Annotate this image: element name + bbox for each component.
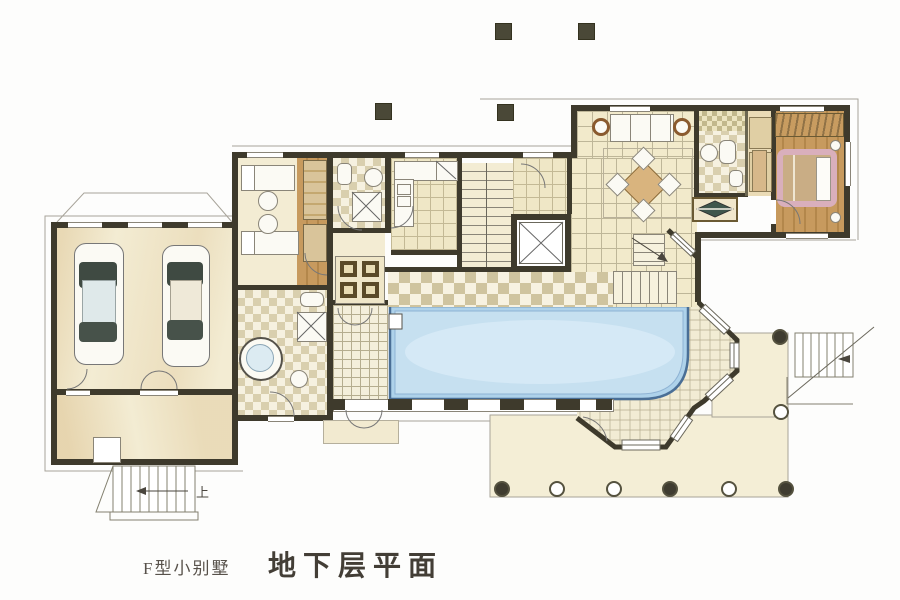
wall-closet-divider [745,111,748,196]
pool-wall-pier [500,399,524,410]
shower-stall [352,192,382,222]
garage-double-door-gap [140,390,178,396]
sideboard [692,197,738,222]
shower-stall [297,312,327,342]
exterior-stairs-west [96,466,198,520]
pillow [242,232,255,254]
sink [364,168,383,187]
staffroom-window [247,152,283,158]
wall-hall-east [695,232,701,302]
structural-column [375,103,392,120]
living-window [610,106,650,112]
bedroom-window-south [786,233,828,239]
car-2-rear-window [167,320,203,340]
elevator-cab [519,222,563,264]
bed-fold-line [793,155,795,201]
wall-bathnorth-south [333,228,391,233]
swimming-pool [379,306,688,399]
pool-skimmer-box [389,314,402,329]
wall-garage-south [51,459,237,465]
inlay-tile [340,282,357,298]
wall-deck-north [385,267,511,272]
pool-wall-pier [596,399,612,410]
wardrobe [775,113,844,137]
cabinet [303,224,327,262]
floor-plan-canvas: 上 F型小别墅 地下层平面 [0,0,900,600]
round-tub-basin [246,344,274,372]
garage-door-gap [66,390,90,396]
toilet [300,292,324,307]
villa-model-caption: F型小别墅 [143,554,230,579]
pool-wall-pier [388,399,412,410]
garage-window [68,222,102,228]
pool-wall-pier [556,399,580,410]
kitchen-sink [397,196,411,207]
bedroom-door-gap [771,200,776,224]
wall-bathnorth-east [385,158,391,233]
wall-kitchen-south [391,250,461,255]
side-table [592,118,610,136]
interior-stairs-upper [633,234,665,266]
staff-bed-1 [241,165,295,191]
car-1-rear-window [79,322,117,342]
bed-pillow [816,157,831,201]
structural-column [578,23,595,40]
corridor-window [523,152,553,158]
bedside-lamp [830,140,841,151]
inlay-tile [362,261,379,277]
desk [752,150,767,192]
bath-door-gap [268,416,294,422]
staff-bed-2 [241,231,299,255]
stairwell-divider [486,163,487,267]
side-table [673,118,691,136]
refrigerator [436,161,458,181]
wardrobe-shelves [303,160,327,220]
bidet [729,170,743,187]
toilet [719,140,736,164]
driveway-room [57,395,232,465]
stairwell [461,163,513,267]
garage-window [188,222,222,228]
pillow [242,166,255,190]
structural-column [495,23,512,40]
stairs-up-label: 上 [196,482,209,501]
car-2 [162,245,210,367]
plan-title-caption: 地下层平面 [268,544,443,584]
exterior-stairs-east [787,327,874,404]
bedroom-window-north [780,106,824,112]
sink [290,370,308,388]
kitchen-sink [397,184,411,195]
wall-corridor-east [567,158,572,214]
corridor [513,158,571,216]
bedside-lamp [830,212,841,223]
car-1 [74,243,124,365]
wall-staffroom-south [237,285,327,290]
stool [258,214,278,234]
sofa [610,114,674,142]
changing-room [333,305,388,412]
wall-bath-east-west [694,111,699,196]
foyer-inlay [335,256,385,304]
interior-stairs-lower [613,271,677,304]
bathroom-east-shower-strip [697,111,747,131]
toilet [337,163,352,185]
garage-window [128,222,162,228]
wall-garage-west [51,222,57,465]
bedroom-window-east [845,142,851,186]
closet-shelf [749,117,772,149]
driveway-hatch [93,437,121,463]
inlay-tile [362,282,379,298]
pool-wall-pier [444,399,468,410]
structural-column [497,104,514,121]
pool-deck-checker [388,272,613,307]
pool-wall-pier [333,399,345,410]
south-door-landing [323,420,399,444]
sink [700,144,718,162]
kitchen-window [405,152,439,158]
inlay-tile [340,261,357,277]
wall-step [571,105,577,158]
bed [777,149,837,207]
stool [258,191,278,211]
